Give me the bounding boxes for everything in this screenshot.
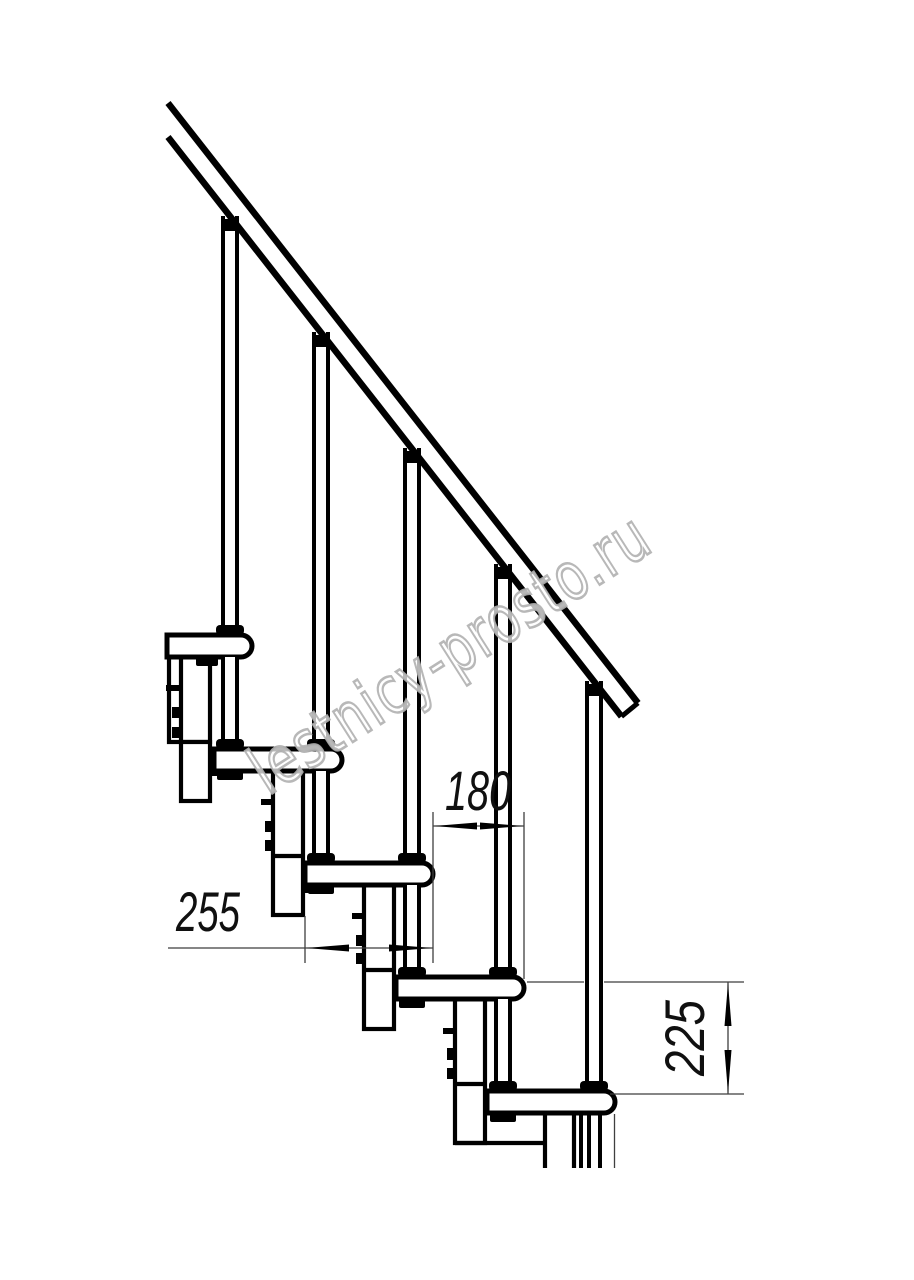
dimension-label-225: 225 <box>653 999 716 1077</box>
support-column-3 <box>352 885 394 1029</box>
tread-collar <box>489 967 517 977</box>
connector-lug <box>265 840 273 851</box>
dimension-label-255: 255 <box>175 880 240 943</box>
nut <box>490 1113 516 1122</box>
nut <box>217 771 243 780</box>
foot-collar <box>398 967 426 977</box>
nut <box>308 885 334 894</box>
tread-5 <box>487 1091 615 1113</box>
connector-lug <box>447 1048 455 1060</box>
foot-collar <box>489 1081 517 1091</box>
baluster-1 <box>216 216 244 780</box>
tread-collar <box>580 1081 608 1091</box>
dimension-label-180: 180 <box>445 759 511 822</box>
technical-drawing-page: 180 255 225 lestnicy-prosto.ru <box>0 0 914 1280</box>
support-column-5 <box>545 1113 574 1168</box>
nut <box>399 999 425 1008</box>
bolt-under-tread-1 <box>196 657 218 666</box>
connector-lug <box>265 821 273 832</box>
tread-collar <box>398 853 426 863</box>
baluster-2 <box>307 332 335 894</box>
connector-lug <box>447 1068 455 1079</box>
foot-collar <box>307 853 335 863</box>
connector-lug <box>356 935 364 946</box>
connector-lug <box>356 953 364 964</box>
tread-3 <box>305 863 433 885</box>
staircase-drawing: 180 255 225 lestnicy-prosto.ru <box>0 0 914 1280</box>
tread-1 <box>167 635 252 657</box>
connector-lug <box>443 1028 455 1034</box>
tread-collar <box>216 625 244 635</box>
connector-lug <box>352 913 364 919</box>
connector-lug <box>166 685 181 691</box>
arrowhead-down <box>725 1050 732 1093</box>
arrowhead-left <box>306 945 349 952</box>
tread-4 <box>396 977 524 999</box>
connector-lug <box>172 727 181 738</box>
arrowhead-up <box>725 983 732 1026</box>
connector-lug <box>172 707 181 718</box>
support-column-1 <box>166 657 219 801</box>
arrowhead-left <box>434 823 477 830</box>
